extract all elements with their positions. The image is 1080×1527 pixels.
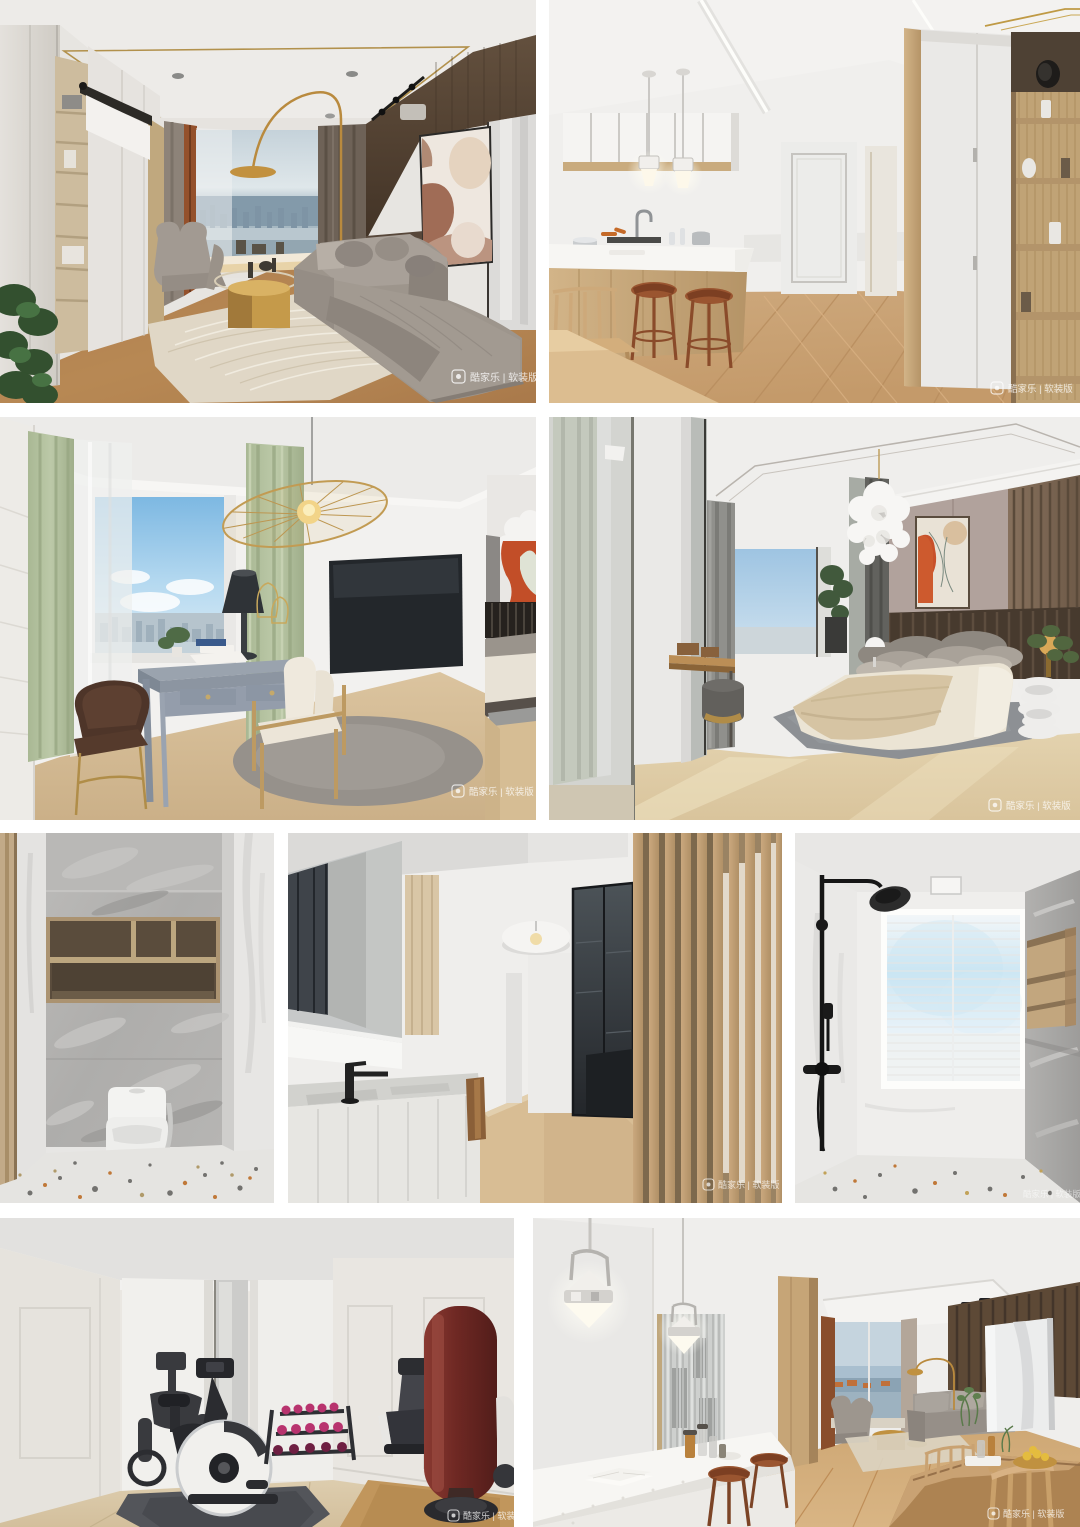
svg-text:酷家乐 | 软装版: 酷家乐 | 软装版	[1003, 1508, 1064, 1519]
svg-text:酷家乐 | 软装版: 酷家乐 | 软装版	[469, 786, 534, 798]
svg-text:酷家乐 | 软装版: 酷家乐 | 软装版	[1006, 800, 1071, 812]
svg-text:酷家乐 | 软装版: 酷家乐 | 软装版	[470, 371, 536, 384]
svg-text:酷家乐 | 软装版: 酷家乐 | 软装版	[1008, 383, 1073, 395]
svg-text:酷家乐 | 软装版: 酷家乐 | 软装版	[463, 1510, 514, 1521]
svg-text:酷家乐 | 软装版: 酷家乐 | 软装版	[1023, 1189, 1080, 1199]
svg-text:酷家乐 | 软装版: 酷家乐 | 软装版	[718, 1179, 779, 1190]
